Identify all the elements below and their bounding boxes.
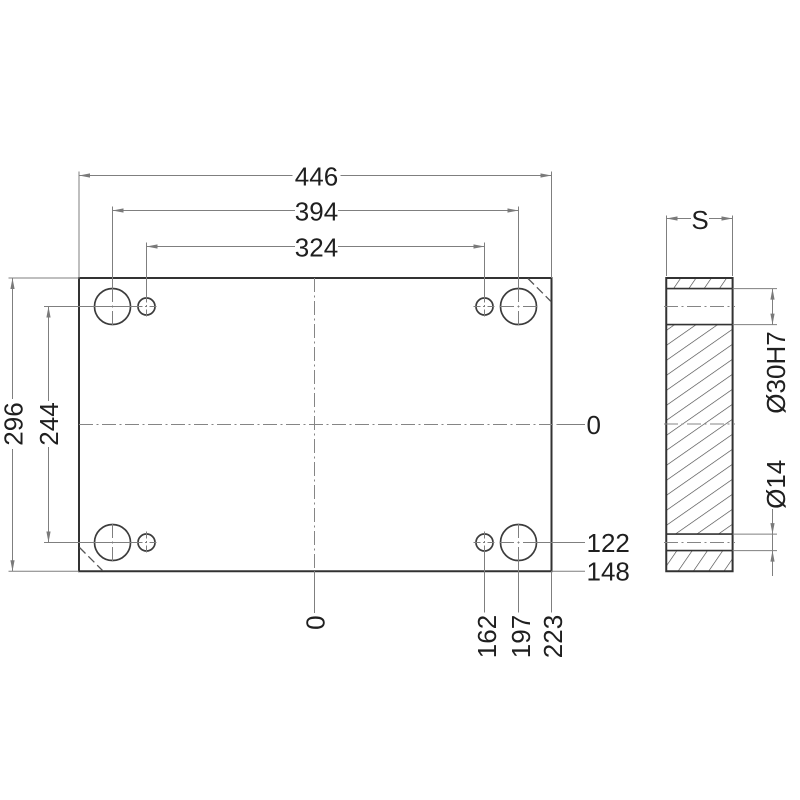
svg-text:0: 0 [587,410,601,440]
svg-text:446: 446 [295,161,338,191]
svg-text:S: S [691,205,708,235]
svg-text:223: 223 [538,615,568,658]
svg-text:Ø14: Ø14 [761,460,791,509]
svg-text:197: 197 [506,615,536,658]
svg-text:Ø30H7: Ø30H7 [761,331,791,413]
svg-text:148: 148 [587,557,630,587]
svg-text:122: 122 [587,528,630,558]
svg-text:394: 394 [295,196,338,226]
svg-text:324: 324 [295,232,338,262]
svg-text:296: 296 [0,402,28,445]
svg-text:162: 162 [472,615,502,658]
svg-text:244: 244 [34,402,64,445]
svg-text:0: 0 [301,615,331,629]
